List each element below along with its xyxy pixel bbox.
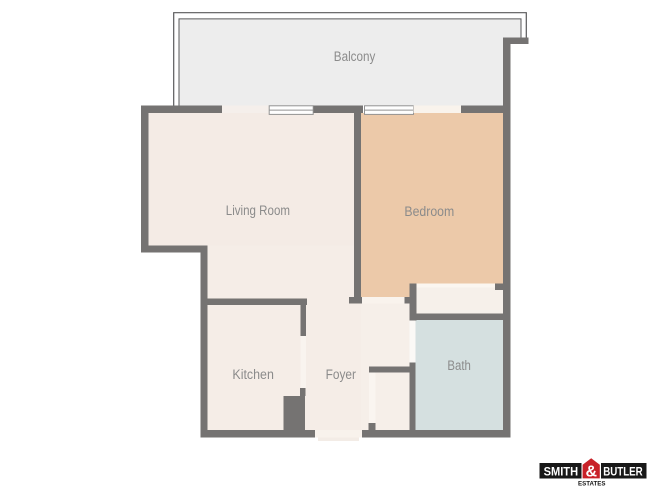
svg-text:Living Room: Living Room	[226, 203, 290, 218]
svg-text:Kitchen: Kitchen	[232, 367, 274, 382]
svg-text:Bedroom: Bedroom	[404, 204, 454, 219]
svg-text:Bath: Bath	[447, 358, 471, 373]
svg-text:Balcony: Balcony	[334, 49, 376, 64]
svg-text:ESTATES: ESTATES	[578, 480, 606, 487]
svg-text:BUTLER: BUTLER	[603, 466, 643, 478]
svg-text:Foyer: Foyer	[326, 367, 357, 382]
svg-text:&: &	[586, 464, 598, 481]
svg-text:SMITH: SMITH	[544, 466, 579, 478]
